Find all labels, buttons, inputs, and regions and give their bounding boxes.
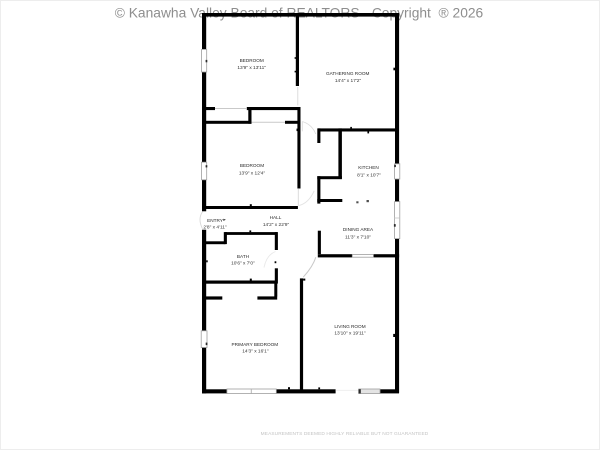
svg-text:BATH: BATH [237,254,249,259]
svg-text:10'6" x 7'0": 10'6" x 7'0" [231,261,255,267]
svg-text:MEASUREMENTS DEEMED HIGHLY REL: MEASUREMENTS DEEMED HIGHLY RELIABLE BUT … [261,431,429,437]
svg-text:HALL: HALL [270,215,282,220]
svg-text:GATHERING ROOM: GATHERING ROOM [326,71,369,76]
svg-text:14'3" x 16'1": 14'3" x 16'1" [242,349,269,355]
svg-text:11'3" x 7'10": 11'3" x 7'10" [345,234,371,240]
svg-text:KITCHEN: KITCHEN [358,165,379,170]
svg-text:PRIMARY BEDROOM: PRIMARY BEDROOM [231,342,278,347]
svg-text:14'2" x 22'9": 14'2" x 22'9" [263,222,290,228]
svg-text:13'10" x 19'11": 13'10" x 19'11" [334,331,366,337]
svg-text:13'9" x 12'4": 13'9" x 12'4" [239,171,266,177]
svg-text:14'4" x 17'2": 14'4" x 17'2" [335,78,362,84]
svg-text:DINING AREA: DINING AREA [343,227,374,232]
svg-text:ENTRY: ENTRY [207,218,224,223]
svg-text:13'9" x 13'11": 13'9" x 13'11" [237,65,266,71]
svg-text:BEDROOM: BEDROOM [240,58,264,63]
svg-text:BEDROOM: BEDROOM [240,163,264,168]
svg-text:8'1" x 10'7": 8'1" x 10'7" [357,172,381,178]
svg-text:LIVING ROOM: LIVING ROOM [334,324,365,329]
svg-text:2'8" x 4'11": 2'8" x 4'11" [203,224,227,230]
